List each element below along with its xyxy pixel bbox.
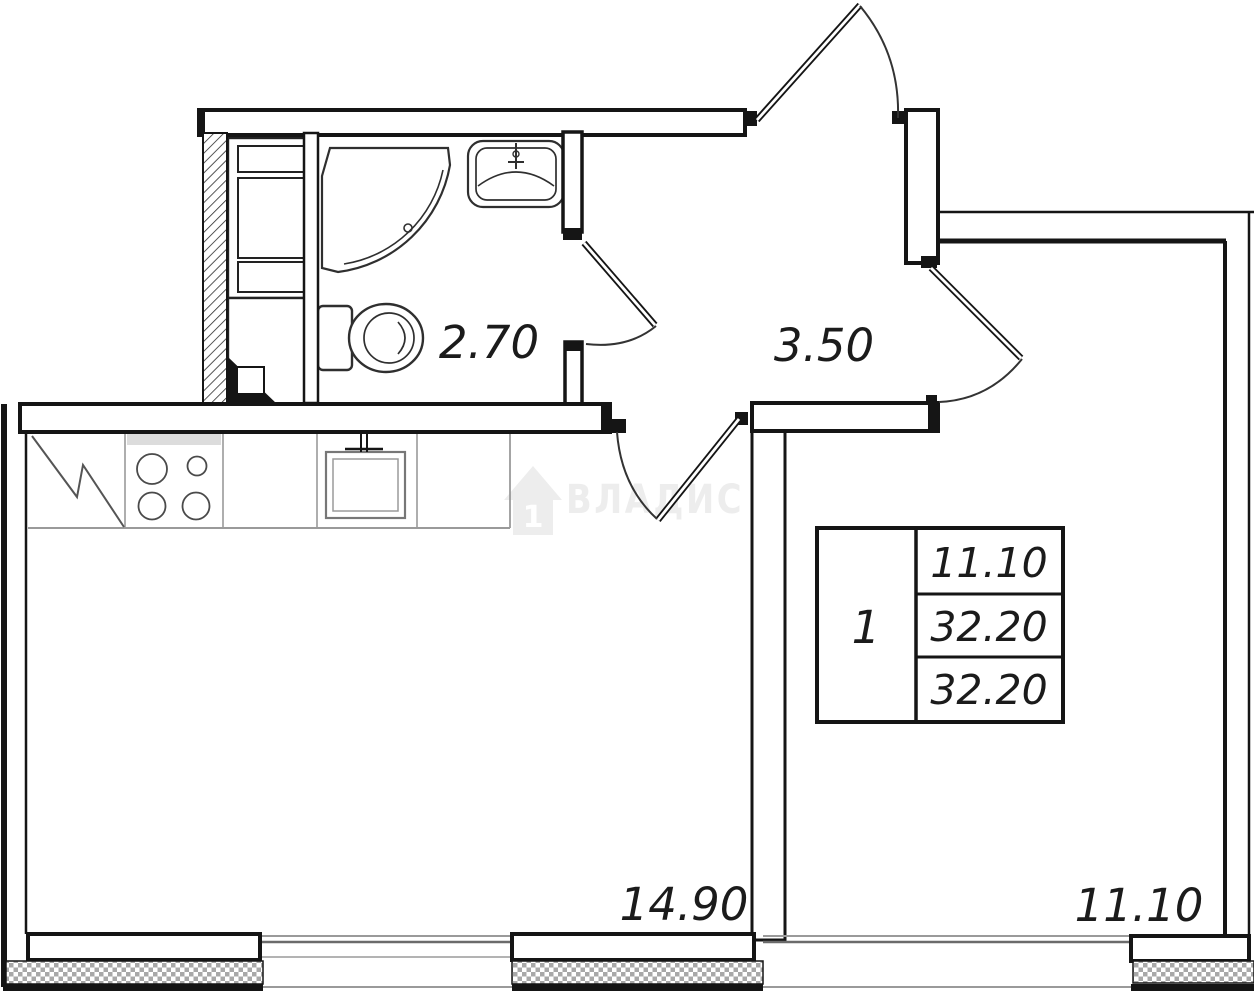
toilet-icon	[318, 304, 423, 372]
floor-plan-canvas: 1 ВЛАДИС	[0, 0, 1254, 991]
wall-bathroom-right-upper	[563, 132, 582, 232]
stamp-living-area: 11.10	[930, 539, 1047, 587]
floor-plan: 1 ВЛАДИС	[0, 0, 1254, 991]
watermark-house-number: 1	[523, 500, 544, 535]
window-sill-hatch	[512, 961, 763, 984]
wall-bedroom-left	[752, 403, 785, 940]
window-kitchen-right	[512, 934, 763, 991]
window-sill-hatch	[1133, 961, 1254, 983]
wall-entrance-pilaster	[906, 110, 938, 263]
area-stamp-table: 1 11.10 32.20 32.20	[817, 528, 1063, 722]
room-area-bedroom: 11.10	[1075, 879, 1204, 932]
stamp-total-area: 32.20	[930, 666, 1047, 714]
door-jamb	[744, 111, 757, 126]
window-kitchen-left	[3, 934, 263, 991]
wall-bathroom-right-lower	[565, 342, 582, 406]
wall-cap	[565, 342, 582, 351]
room-area-kitchen-living: 14.90	[620, 878, 749, 931]
door-jamb	[926, 395, 937, 404]
window-bedroom	[1131, 936, 1254, 991]
wall-hatched-shaft	[203, 133, 227, 405]
window-sill-hatch	[6, 961, 263, 984]
wall-cap	[928, 404, 938, 430]
wall-cap	[563, 228, 582, 240]
wall-hallway-bottom	[752, 403, 938, 431]
wall-cap	[601, 405, 610, 432]
room-area-bathroom: 2.70	[439, 316, 539, 369]
stamp-rooms-count: 1	[852, 601, 881, 654]
room-area-hallway: 3.50	[774, 319, 874, 372]
wall-top-outer	[200, 110, 745, 135]
door-jamb	[611, 419, 626, 433]
wall-kitchen-top	[20, 404, 610, 432]
wall-bathroom-divider	[304, 133, 318, 403]
stamp-area-without-balcony: 32.20	[930, 603, 1047, 651]
door-jamb	[921, 256, 937, 268]
